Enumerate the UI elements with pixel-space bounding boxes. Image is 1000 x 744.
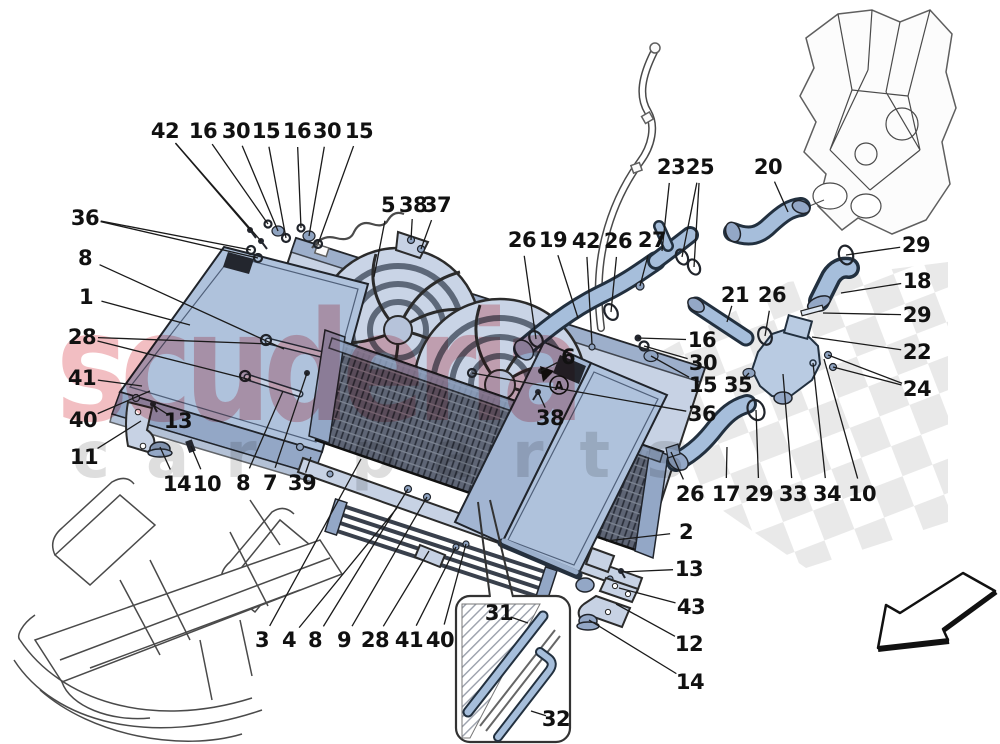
leader-line	[416, 547, 456, 626]
leader-line	[644, 346, 688, 359]
leader-line	[100, 265, 284, 349]
callout-label: 5	[381, 193, 395, 217]
callout-label: 21	[721, 283, 749, 307]
leader-line	[541, 363, 557, 371]
leader-line	[611, 257, 616, 312]
callout-label: 15	[252, 119, 280, 143]
leader-line	[249, 391, 283, 468]
callout-label: 10	[193, 472, 221, 496]
leader-line	[101, 222, 258, 258]
callout-label: 26	[758, 283, 786, 307]
callout-label: 26	[676, 482, 704, 506]
callout-label: 14	[163, 472, 191, 496]
leader-line	[640, 255, 648, 286]
callout-label: 13	[164, 409, 192, 433]
leader-line	[558, 255, 578, 318]
leader-line	[98, 341, 251, 380]
callout-label: 29	[903, 303, 931, 327]
leader-line	[269, 147, 286, 238]
leader-line	[651, 356, 689, 377]
leader-line	[101, 221, 251, 250]
callout-label: 19	[539, 228, 567, 252]
leader-line	[606, 534, 670, 541]
callout-label: 42	[151, 119, 179, 143]
callout-label: 4	[282, 628, 296, 652]
leader-line	[813, 363, 825, 478]
leader-line	[318, 146, 354, 244]
leader-line	[191, 446, 201, 469]
leader-line	[160, 447, 170, 469]
callout-label: 37	[423, 193, 451, 217]
callout-label: 29	[745, 482, 773, 506]
callout-label: 35	[724, 373, 752, 397]
leader-line	[411, 219, 412, 240]
callout-label: 30	[313, 119, 341, 143]
leader-line	[619, 588, 676, 603]
leader-line	[812, 337, 901, 350]
leader-line	[783, 374, 792, 478]
callout-label: 23	[657, 155, 685, 179]
callout-label: 31	[485, 601, 513, 625]
leader-line	[298, 147, 301, 228]
leader-line	[472, 373, 686, 411]
callout-label: 30	[222, 119, 250, 143]
callout-label: 40	[69, 408, 97, 432]
parts-diagram-page: A scuderia car parts 4216301516301536812…	[0, 0, 1000, 744]
leader-line	[176, 143, 261, 241]
callout-label: 15	[689, 373, 717, 397]
callout-label: 32	[542, 707, 570, 731]
callout-label: 16	[189, 119, 217, 143]
callout-label: 26	[604, 229, 632, 253]
callout-label: 18	[903, 269, 931, 293]
callout-label: 8	[78, 246, 92, 270]
leader-line	[671, 452, 683, 479]
callout-label: 6	[561, 345, 575, 369]
callout-label: 39	[288, 471, 316, 495]
callout-label: 41	[68, 366, 96, 390]
callout-label: 26	[508, 228, 536, 252]
leader-line	[275, 373, 307, 468]
callout-label: 17	[712, 482, 740, 506]
callout-label: 7	[263, 471, 277, 495]
leader-line	[242, 146, 278, 231]
callout-label: 16	[688, 328, 716, 352]
leader-line	[101, 301, 190, 325]
callout-label: 20	[754, 155, 782, 179]
callout-label: 8	[236, 471, 250, 495]
leader-line	[309, 147, 324, 236]
callout-label: 38	[536, 406, 564, 430]
leader-line	[587, 257, 592, 344]
callout-label: 15	[345, 119, 373, 143]
callout-label: 40	[426, 628, 454, 652]
leader-line	[823, 313, 901, 315]
callout-label: 41	[395, 628, 423, 652]
callout-label: 34	[813, 482, 841, 506]
leader-line	[299, 508, 397, 628]
leader-line	[98, 338, 271, 344]
callout-label: 24	[903, 377, 931, 401]
leader-line	[774, 182, 788, 212]
leader-line	[98, 380, 142, 386]
callout-label: 9	[337, 628, 351, 652]
leader-line	[524, 256, 536, 339]
callout-label: 33	[779, 482, 807, 506]
leader-line	[621, 570, 673, 572]
callout-label: 14	[676, 670, 704, 694]
callout-label: 42	[572, 229, 600, 253]
leader-line	[756, 410, 758, 478]
leader-line	[374, 221, 385, 277]
leader-line	[511, 617, 528, 623]
callout-label: 28	[361, 628, 389, 652]
callout-label: 12	[675, 632, 703, 656]
leader-line	[421, 220, 432, 249]
callout-label: 16	[283, 119, 311, 143]
callout-label: 8	[308, 628, 322, 652]
leader-line	[765, 311, 769, 336]
callout-label: 28	[68, 325, 96, 349]
leader-line	[846, 247, 900, 255]
leader-line	[616, 604, 675, 636]
callout-label: 13	[675, 557, 703, 581]
callout-label: 36	[688, 402, 716, 426]
leader-line	[841, 283, 901, 293]
leader-line	[98, 391, 150, 414]
callout-label: 43	[677, 595, 705, 619]
callout-label: 29	[902, 233, 930, 257]
callout-label: 36	[71, 206, 99, 230]
leader-line	[589, 620, 676, 674]
callout-label: 2	[679, 520, 693, 544]
callout-label: 1	[79, 285, 93, 309]
callout-label: 22	[903, 340, 931, 364]
leader-line	[726, 447, 727, 478]
callout-label: 11	[70, 445, 98, 469]
callout-label: 25	[686, 155, 714, 179]
leader-line	[638, 338, 686, 340]
callout-label: 30	[689, 351, 717, 375]
callout-label: 10	[848, 482, 876, 506]
leader-line	[444, 544, 466, 625]
callout-label: 27	[638, 228, 666, 252]
leader-line	[98, 421, 141, 448]
leader-line	[212, 144, 268, 224]
leader-line	[727, 306, 732, 322]
callout-leader-lines	[0, 0, 1000, 744]
callout-label: 3	[255, 628, 269, 652]
leader-line	[824, 359, 858, 479]
